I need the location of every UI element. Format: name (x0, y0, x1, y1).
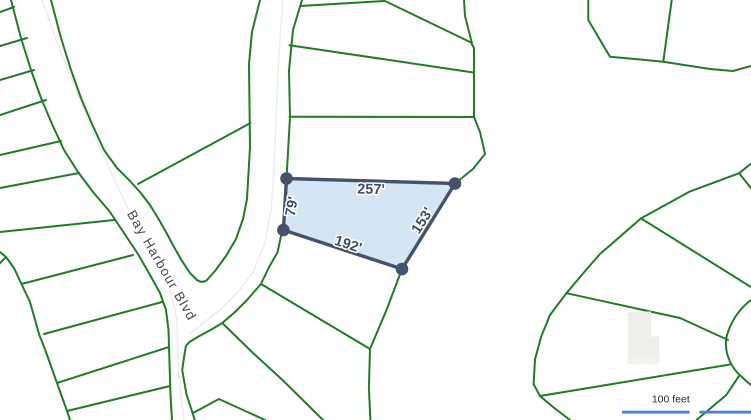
svg-text:79': 79' (283, 195, 302, 217)
svg-text:100 feet: 100 feet (652, 394, 690, 406)
svg-text:257': 257' (357, 181, 385, 198)
